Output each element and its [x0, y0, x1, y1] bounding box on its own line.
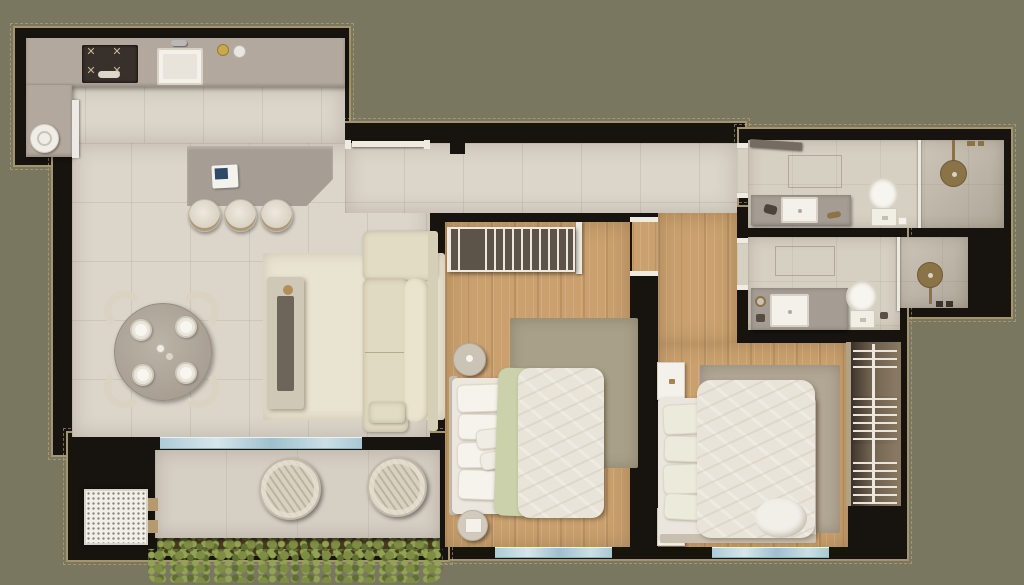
table-decor [156, 344, 165, 353]
place-setting [175, 316, 197, 338]
bathroom2-shower-head [917, 262, 943, 288]
tray [465, 518, 482, 533]
bar-stool-1 [188, 199, 221, 232]
kitchen-faucet-icon [171, 40, 187, 46]
bathroom1-sink [781, 197, 818, 223]
sofa-back-cushion [404, 277, 429, 423]
entry-door-jamb-left [345, 140, 351, 149]
bathroom2-toilet-tank [850, 310, 875, 328]
sink-basin [163, 54, 197, 79]
coffee-table [267, 277, 304, 409]
bedroom1-nightstand [453, 343, 486, 376]
decor-ball [283, 285, 293, 295]
cup [465, 354, 474, 363]
bathroom2-shower-controls [946, 301, 953, 307]
wardrobe-gap [853, 368, 897, 396]
bedroom2-nightstand-upper [657, 362, 685, 400]
sink-drain [788, 310, 792, 314]
bathroom1-mirror-outline [788, 155, 842, 188]
burner-icon: ✕ [85, 66, 97, 78]
bathroom2-door-jamb-top [737, 238, 748, 243]
washer [30, 124, 59, 153]
bedroom1-side-table [457, 510, 488, 541]
bathroom1-shower-head [940, 160, 967, 187]
bathroom2-shower-divider [897, 237, 900, 311]
wardrobe-gap [853, 444, 897, 462]
laptop [211, 164, 238, 188]
bed2-throw-blanket [755, 498, 807, 538]
balcony-chair-2 [367, 457, 427, 517]
cooktop-controls [98, 71, 120, 78]
entry-wall-notch [450, 143, 465, 154]
shower-head-center [952, 172, 957, 177]
bathroom2-item [756, 314, 765, 322]
bathroom1-floor-item [898, 217, 907, 225]
bathroom1-door-jamb-top [737, 143, 748, 148]
floor-plan: ✕ ✕ ✕ ✕ [0, 0, 1024, 585]
sofa-chaise [363, 231, 437, 280]
coffee-table-tray [277, 296, 294, 391]
ac-bracket [148, 520, 158, 533]
burner-icon: ✕ [111, 47, 123, 59]
canister-white [233, 45, 246, 58]
wardrobe-rail [872, 344, 875, 504]
bedroom1-doorway [632, 222, 658, 272]
bedroom1-shelf-gap [465, 229, 485, 270]
laptop-screen [215, 168, 229, 180]
balcony-chair-1 [259, 458, 321, 520]
entry-door-leaf [352, 141, 424, 147]
bed1-duvet [518, 368, 604, 518]
place-setting [132, 364, 154, 386]
bathroom2-shower-stem [929, 286, 932, 304]
sink-drain [798, 209, 802, 213]
bathroom2-floor-item [880, 312, 888, 319]
ac-condenser-grille [84, 489, 148, 545]
bedroom1-door-jamb-top [630, 217, 658, 222]
burner-icon: ✕ [85, 47, 97, 59]
bathroom1-shower-controls [978, 141, 984, 146]
ac-bracket [148, 498, 158, 511]
sofa-frame [428, 231, 438, 431]
wardrobe [851, 342, 901, 506]
bathroom1-toilet-tank [871, 208, 897, 226]
bathroom2-doorway [737, 243, 748, 285]
table-decor [166, 353, 173, 360]
bar-stool-3 [260, 199, 293, 232]
place-setting [175, 362, 197, 384]
bathroom2-sink [770, 294, 809, 327]
bathroom1-shower-controls [967, 141, 975, 146]
place-setting [130, 319, 152, 341]
handle-bronze [669, 379, 675, 384]
flush-button [860, 318, 866, 322]
bathroom1-shower-area [921, 140, 1004, 228]
hallway-floor [658, 213, 737, 345]
bedroom1-door-leaf [576, 222, 582, 274]
bathroom2-shower-controls [936, 301, 943, 307]
bedroom1-door-jamb-bottom [630, 271, 658, 276]
bathroom2-toilet-bowl [846, 280, 878, 313]
bathroom1-shower-arm [952, 140, 955, 162]
planter-greenery-spill [148, 549, 443, 583]
entry-door-jamb-right [424, 140, 430, 149]
bathroom2-tray-outline [775, 246, 835, 276]
washer-drum [37, 131, 52, 146]
sofa-seam [365, 352, 406, 353]
bathroom1-toilet-bowl [867, 177, 899, 211]
balcony-sliding-glass-door [160, 437, 362, 449]
bathroom2-door-jamb-bottom [737, 285, 748, 290]
shower-head-center [928, 273, 933, 278]
sofa-footstool [369, 402, 405, 423]
bathroom2-round-mirror [755, 296, 766, 307]
bedroom2-window [712, 547, 829, 558]
bathroom1-shower-divider [918, 140, 921, 228]
kitchen-sink [157, 48, 203, 85]
bathroom1-door-jamb-bottom [737, 193, 748, 198]
kitchen-island [187, 146, 333, 206]
corridor-floor [345, 143, 737, 213]
bar-stool-2 [224, 199, 257, 232]
flush-button [882, 216, 888, 220]
bedroom1-window [495, 547, 612, 558]
canister-gold [217, 44, 229, 56]
bathroom1-doorway [737, 148, 748, 193]
tall-cabinet [72, 100, 79, 158]
cooktop: ✕ ✕ ✕ ✕ [82, 45, 138, 83]
